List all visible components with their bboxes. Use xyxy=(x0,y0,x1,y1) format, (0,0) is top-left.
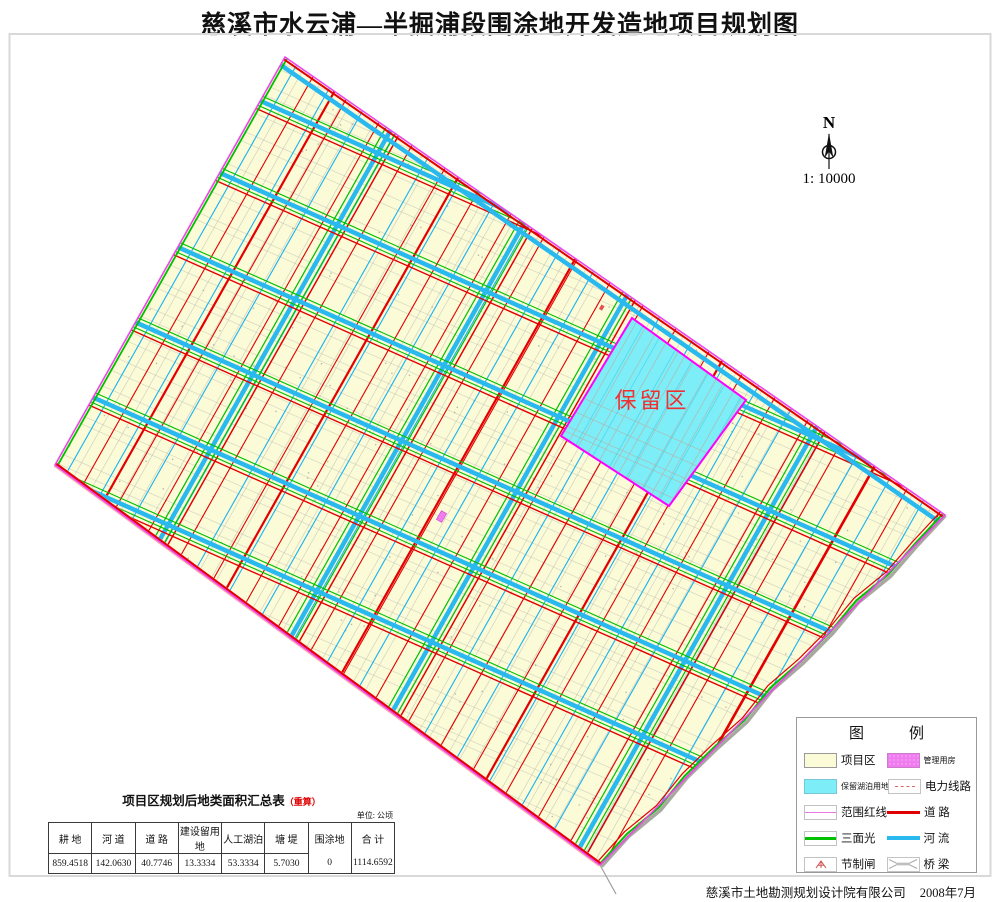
col-header: 围涂地 xyxy=(308,823,351,854)
area-summary: 项目区规划后地类面积汇总表（重算） 单位: 公顷 耕 地 河 道 道 路 建设留… xyxy=(48,790,395,874)
col-header: 塘 堤 xyxy=(265,823,308,854)
table-value-row: 859.4518 142.0630 40.7746 13.3334 53.333… xyxy=(49,854,395,874)
river-swatch xyxy=(887,831,920,846)
legend-item-lined-canal: 三面光 xyxy=(804,830,887,846)
col-header: 河 道 xyxy=(92,823,135,854)
legend-item-management-housing: 管理用房 xyxy=(887,753,970,768)
table-title-note: （重算） xyxy=(285,797,321,807)
table-title-text: 项目区规划后地类面积汇总表 xyxy=(122,794,285,808)
table-title: 项目区规划后地类面积汇总表（重算） xyxy=(48,790,395,809)
legend-item-control-gate: 节制闸 xyxy=(804,856,887,872)
north-label: N xyxy=(823,113,836,132)
area-table: 耕 地 河 道 道 路 建设留用地 人工湖泊 塘 堤 围涂地 合 计 859.4… xyxy=(48,822,395,874)
map-date: 2008年7月 xyxy=(920,886,976,900)
project-area-swatch xyxy=(804,753,837,768)
plan-sheet: 慈溪市水云浦—半掘浦段围涂地开发造地项目规划图 保留区 N 1: 10000 图… xyxy=(0,0,1000,902)
legend-label: 保留湖泊用地 xyxy=(841,781,889,792)
legend-label: 范围红线 xyxy=(841,804,887,820)
reserved-lake-swatch xyxy=(804,779,837,794)
legend-title: 图 例 xyxy=(804,722,969,743)
road-swatch xyxy=(887,805,920,820)
col-header: 道 路 xyxy=(135,823,178,854)
cell-value: 53.3334 xyxy=(222,854,265,874)
legend-label: 桥 梁 xyxy=(924,856,950,872)
cell-value: 0 xyxy=(308,854,351,874)
credit-line: 慈溪市土地勘测规划设计院有限公司2008年7月 xyxy=(706,882,976,901)
col-header: 建设留用地 xyxy=(178,823,221,854)
cell-value: 40.7746 xyxy=(135,854,178,874)
legend-item-river: 河 流 xyxy=(887,830,970,846)
legend-label: 节制闸 xyxy=(841,856,876,872)
col-header: 耕 地 xyxy=(49,823,92,854)
legend-item-bridge: 桥 梁 xyxy=(887,856,970,872)
legend-row: 项目区 管理用房 xyxy=(804,747,969,773)
management-housing-swatch xyxy=(887,753,920,768)
legend-label: 三面光 xyxy=(841,830,876,846)
legend-row: 三面光 河 流 xyxy=(804,825,969,851)
legend-label: 项目区 xyxy=(841,752,876,768)
legend-label: 道 路 xyxy=(924,804,950,820)
legend-item-road: 道 路 xyxy=(887,804,969,820)
reserved-area-label: 保留区 xyxy=(614,388,689,413)
cell-value: 859.4518 xyxy=(49,854,92,874)
legend-item-project-area: 项目区 xyxy=(804,752,887,768)
legend-panel: 图 例 项目区 管理用房 保留湖泊用地 电力线路 xyxy=(796,717,977,873)
scale-label: 1: 10000 xyxy=(803,171,856,187)
legend-item-boundary-redline: 范围红线 xyxy=(804,804,887,820)
north-arrow: N 1: 10000 xyxy=(803,113,856,187)
lined-canal-swatch xyxy=(804,831,837,846)
legend-row: 保留湖泊用地 电力线路 xyxy=(804,773,969,799)
col-header: 人工湖泊 xyxy=(222,823,265,854)
boundary-redline-swatch xyxy=(804,805,837,820)
company-name: 慈溪市土地勘测规划设计院有限公司 xyxy=(706,886,906,900)
cell-value: 1114.6592 xyxy=(351,854,394,874)
legend-item-power-line: 电力线路 xyxy=(888,778,971,794)
power-line-swatch xyxy=(888,779,921,794)
cell-value: 142.0630 xyxy=(92,854,135,874)
legend-row: 节制闸 桥 梁 xyxy=(804,851,969,877)
control-gate-icon xyxy=(804,857,837,872)
legend-label: 河 流 xyxy=(924,830,950,846)
cell-value: 13.3334 xyxy=(178,854,221,874)
col-header: 合 计 xyxy=(351,823,394,854)
table-header-row: 耕 地 河 道 道 路 建设留用地 人工湖泊 塘 堤 围涂地 合 计 xyxy=(49,823,395,854)
legend-label: 管理用房 xyxy=(924,755,956,766)
cell-value: 5.7030 xyxy=(265,854,308,874)
table-unit: 单位: 公顷 xyxy=(48,810,393,821)
bridge-icon xyxy=(887,857,920,872)
legend-item-reserved-lake: 保留湖泊用地 xyxy=(804,779,888,794)
legend-row: 范围红线 道 路 xyxy=(804,799,969,825)
legend-label: 电力线路 xyxy=(925,778,971,794)
